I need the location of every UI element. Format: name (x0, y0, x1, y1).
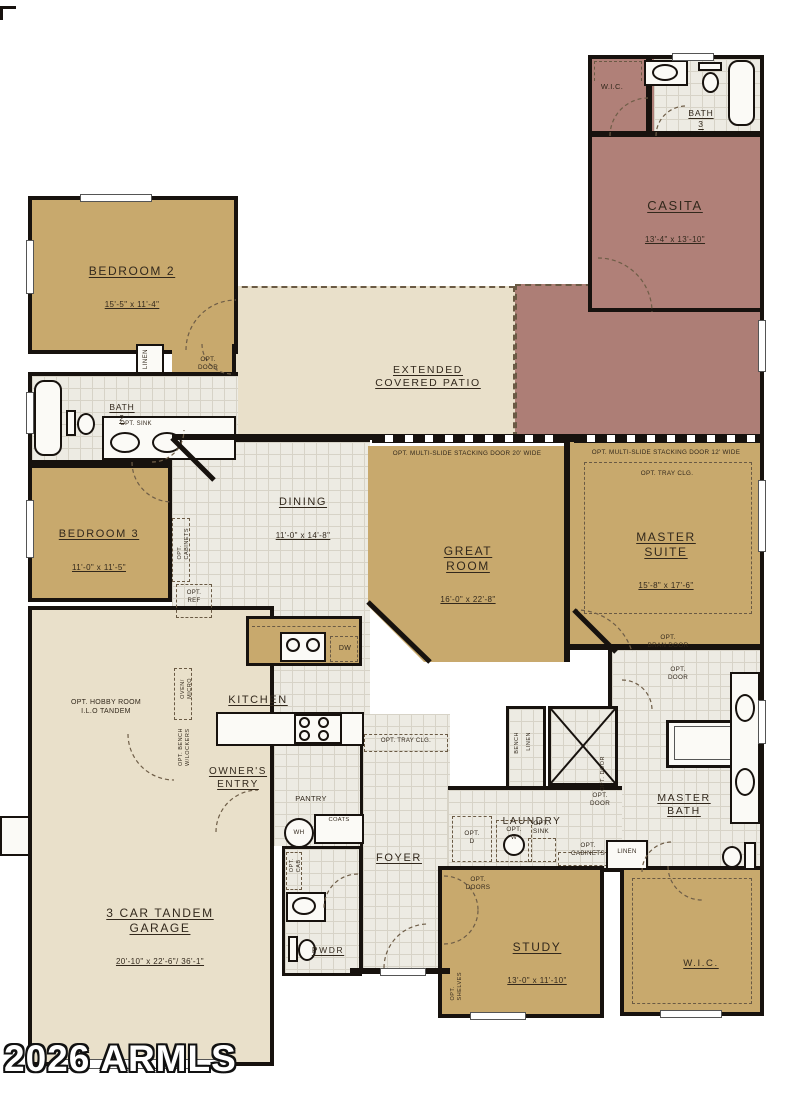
bath2-toilet-tank (66, 410, 76, 436)
wic-label: W.I.C. (683, 938, 718, 990)
patio-label: EXTENDED COVERED PATIO (375, 344, 481, 410)
foyer-tray-label: OPT. TRAY CLG. (381, 738, 431, 746)
opt-bran-door-label: OPT. BRAN DOOR (648, 634, 689, 650)
stacking-door-20-label: OPT. MULTI-SLIDE STACKING DOOR 20' WIDE (372, 450, 562, 458)
master-shower (548, 706, 618, 786)
master-sink-icon (735, 694, 755, 722)
bath3-toilet-tank (698, 62, 722, 71)
window (470, 1012, 526, 1020)
opt-door-label: OPT. DOOR (198, 356, 218, 372)
opt-cabinets-label: OPT. CABINETS (177, 528, 191, 560)
burner-icon (318, 730, 329, 741)
opt-door-master-label: OPT. DOOR (668, 666, 688, 682)
pantry-label: PANTRY (295, 794, 327, 804)
opt-cabinets-laundry-label: OPT. CABINETS (571, 842, 605, 858)
crop-mark (0, 6, 3, 20)
opt-cab-label: OPT. CAB (289, 858, 303, 872)
garage-label: 3 CAR TANDEM GARAGE 20'-10" x 22'-6"/ 36… (106, 886, 213, 987)
window (26, 500, 34, 558)
bath2-tub-icon (34, 380, 62, 456)
bath3-tub-icon (728, 60, 755, 126)
master-toilet-icon (722, 846, 742, 868)
foyer-label: FOYER (376, 832, 422, 886)
master-suite-label: MASTER SUITE 15'-8" x 17'-6" (636, 510, 696, 611)
opt-sink-laundry-label: OPT. SINK (533, 820, 549, 836)
window (672, 53, 714, 61)
window (758, 700, 766, 744)
bath2-label: BATH 2 (109, 382, 134, 443)
opt-bench-label: OPT. BENCH W/LOCKERS (178, 728, 192, 766)
bath3-label: BATH 3 (688, 88, 713, 149)
stacking-door-12 (574, 434, 760, 443)
linen-closet-label: LINEN (526, 732, 533, 751)
kitchen-label: KITCHEN (228, 674, 287, 728)
pwdr-label: PWDR (312, 925, 344, 976)
opt-shelves-label: OPT. SHELVES (450, 972, 464, 1000)
window (80, 194, 152, 202)
stacking-door-20 (372, 434, 566, 443)
casita-wic-label: W.I.C. (601, 82, 623, 92)
dining-label: DINING 11'-0" x 14'-8" (276, 476, 331, 561)
master-bath-label: MASTER BATH (657, 772, 710, 838)
study-label: STUDY 13'-0" x 11'-10" (507, 920, 566, 1006)
wall (588, 131, 764, 137)
wh-label: WH (294, 829, 305, 837)
bench-label: BENCH (514, 732, 521, 754)
linen-master-label: LINEN (617, 849, 636, 857)
linen-label: LINEN (143, 349, 151, 369)
wic-rod (594, 61, 642, 81)
window (758, 320, 766, 372)
kitchen-sink-bowl (286, 638, 300, 652)
opt-doors-study-label: OPT. DOORS (466, 876, 491, 892)
burner-icon (318, 717, 329, 728)
oven-micro-label: OVEN/ MICRO (180, 678, 194, 699)
opt-hobby-label: OPT. HOBBY ROOM I.L.O TANDEM (71, 698, 141, 716)
pwdr-sink-icon (292, 897, 316, 915)
great-room-label: GREAT ROOM 16'-0" x 22'-8" (440, 524, 495, 625)
window (26, 392, 34, 434)
casita-label: CASITA 13'-4" x 13'-10" (645, 178, 705, 265)
window (26, 240, 34, 294)
window (758, 480, 766, 552)
coats-label: COATS (328, 817, 349, 825)
stacking-door-12-label: OPT. MULTI-SLIDE STACKING DOOR 12' WIDE (574, 449, 758, 457)
casita-name: CASITA (645, 198, 705, 214)
front-door-opening (380, 968, 426, 976)
opt-sink-label: OPT. SINK (120, 421, 152, 429)
side-landing (0, 816, 30, 856)
island-counter-line (252, 626, 356, 627)
kitchen-sink-bowl (306, 638, 320, 652)
burner-icon (299, 717, 310, 728)
casita-dims: 13'-4" x 13'-10" (645, 235, 705, 245)
opt-door-laundry-label: OPT. DOOR (590, 792, 610, 808)
floor-plan: CASITA 13'-4" x 13'-10" W.I.C. BATH 3 BE… (0, 0, 800, 1116)
bedroom2-label: BEDROOM 2 15'-5" x 11'-4" (89, 244, 175, 330)
bedroom3-label: BEDROOM 3 11'-0" x 11'-5" (59, 508, 139, 593)
master-toilet-tank (744, 842, 756, 870)
opt-door-mbath-label: OPT. DOOR (600, 756, 607, 791)
window (660, 1010, 722, 1018)
master-sink2-icon (735, 768, 755, 796)
armls-watermark: 2026 ARMLS (4, 1038, 237, 1080)
owners-entry-label: OWNER'S ENTRY (209, 746, 267, 811)
opt-ref-label: OPT. REF (187, 590, 202, 606)
bath3-sink-icon (652, 64, 678, 81)
dw-label: DW (339, 644, 351, 653)
opt-w-label: OPT. W (506, 826, 521, 842)
bath2-toilet-icon (77, 413, 95, 435)
opt-d-label: OPT. D (464, 830, 479, 846)
burner-icon (299, 730, 310, 741)
master-tray-label: OPT. TRAY CLG. (641, 470, 694, 478)
pwdr-toilet-tank (288, 936, 298, 962)
